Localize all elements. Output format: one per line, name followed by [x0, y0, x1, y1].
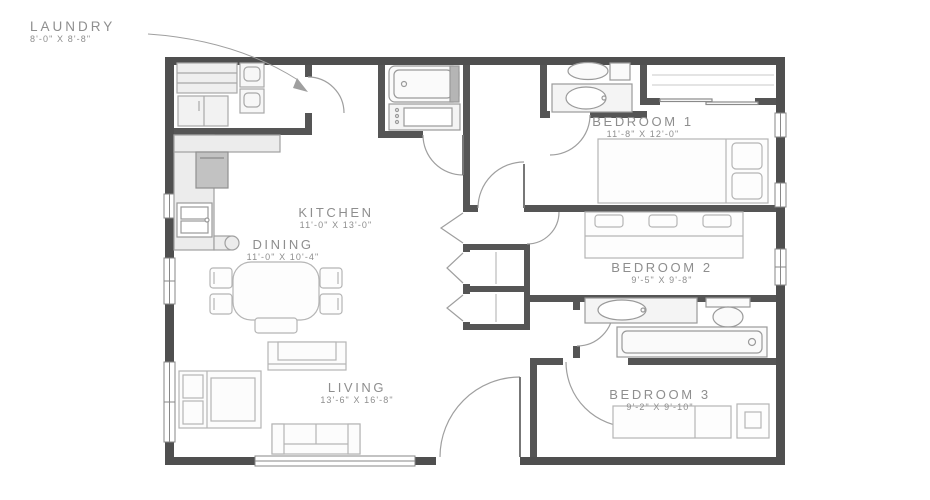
bath3-fixtures: [585, 298, 767, 357]
vanity-bath2: [552, 84, 632, 112]
wall-bath3-west-b: [573, 346, 580, 358]
bed-bedroom3: [613, 404, 769, 438]
wall-closet1-bottom-a: [647, 98, 660, 105]
vanity-bath1: [389, 104, 460, 130]
bathtub-bath3: [617, 327, 767, 357]
dining-chair-bottom: [255, 318, 297, 333]
window-living: [164, 362, 175, 442]
wall-bed1-south-b: [524, 205, 776, 212]
window-dining: [164, 258, 175, 304]
dining-chair-right-1: [320, 268, 342, 288]
door-arc-bath2: [550, 115, 590, 155]
window-bedroom2: [775, 249, 786, 285]
washer: [240, 63, 264, 87]
stove: [196, 152, 228, 188]
living-furniture: [179, 342, 360, 454]
laundry-counter: [177, 63, 237, 93]
toilet-bath3: [706, 298, 750, 327]
dryer: [240, 89, 264, 113]
window-bedroom1-a: [775, 113, 786, 137]
dining-table: [233, 262, 319, 320]
wall-laundry-bottom: [174, 128, 312, 135]
refrigerator: [178, 96, 228, 126]
bifold-closet-a: [447, 253, 463, 283]
wall-bed3-top-b: [628, 358, 776, 365]
wall-bed3-top-a: [530, 358, 563, 365]
bed-bedroom2: [585, 212, 743, 258]
bath1-fixtures: [389, 66, 460, 130]
sofa: [272, 424, 360, 454]
sliding-door-closet1: [660, 99, 758, 105]
bath2-fixtures: [552, 63, 632, 113]
kitchen-counter-top: [174, 135, 280, 152]
kitchen-sink: [177, 203, 212, 237]
dining-furniture: [210, 262, 342, 333]
daybed-sofa: [179, 371, 261, 428]
wall-living-bed3: [530, 365, 537, 457]
kitchen-peninsula: [214, 236, 239, 250]
window-bedroom1-b: [775, 183, 786, 207]
wall-laundry-right-b: [305, 113, 312, 128]
interior-walls: [174, 65, 776, 457]
dining-chair-left-1: [210, 268, 232, 288]
window-living-south: [255, 456, 415, 466]
nightstand-bedroom3: [737, 404, 769, 438]
toilet-bath2: [568, 63, 630, 81]
laundry-fixtures: [177, 63, 264, 126]
wall-bottom-east: [520, 457, 785, 465]
bed-bedroom1: [598, 139, 768, 203]
armchair: [268, 342, 346, 370]
wall-bath3-west-a: [573, 302, 580, 310]
wall-bath1-bottom: [378, 131, 423, 138]
wall-bath2-left: [540, 65, 547, 118]
wall-closet-divider-b: [463, 286, 530, 292]
leader-arrowhead: [293, 78, 308, 92]
floor-plan: LAUNDRY 8'-0" X 8'-8" KITCHEN 11'-0" X 1…: [0, 0, 930, 500]
window-kitchen: [164, 194, 175, 218]
wall-laundry-right-a: [305, 65, 312, 77]
wall-bath2-bottom-a: [540, 111, 550, 118]
floor-plan-drawing: [0, 0, 930, 500]
wall-bath1-left: [378, 65, 385, 138]
dining-chair-right-2: [320, 294, 342, 314]
kitchen-fixtures: [174, 135, 280, 250]
wall-closet-divider-a: [463, 244, 530, 250]
door-arc-entry: [440, 377, 520, 457]
wall-closet1-left: [640, 65, 647, 105]
door-arc-bedroom1: [478, 162, 524, 208]
door-arc-bath1: [423, 135, 463, 175]
closet-bedroom1: [652, 75, 774, 85]
wall-hall-west: [463, 65, 470, 212]
dining-chair-left-2: [210, 294, 232, 314]
bathtub-bath1: [389, 66, 459, 102]
bifold-closet-b: [447, 295, 463, 321]
wall-bed1-south-a: [463, 205, 478, 212]
door-arc-laundry: [308, 77, 344, 113]
door-arc-bedroom2: [527, 212, 559, 244]
vanity-bath3: [585, 298, 697, 323]
bifold-hall-door: [441, 213, 463, 243]
wall-closet-bottom: [463, 324, 530, 330]
